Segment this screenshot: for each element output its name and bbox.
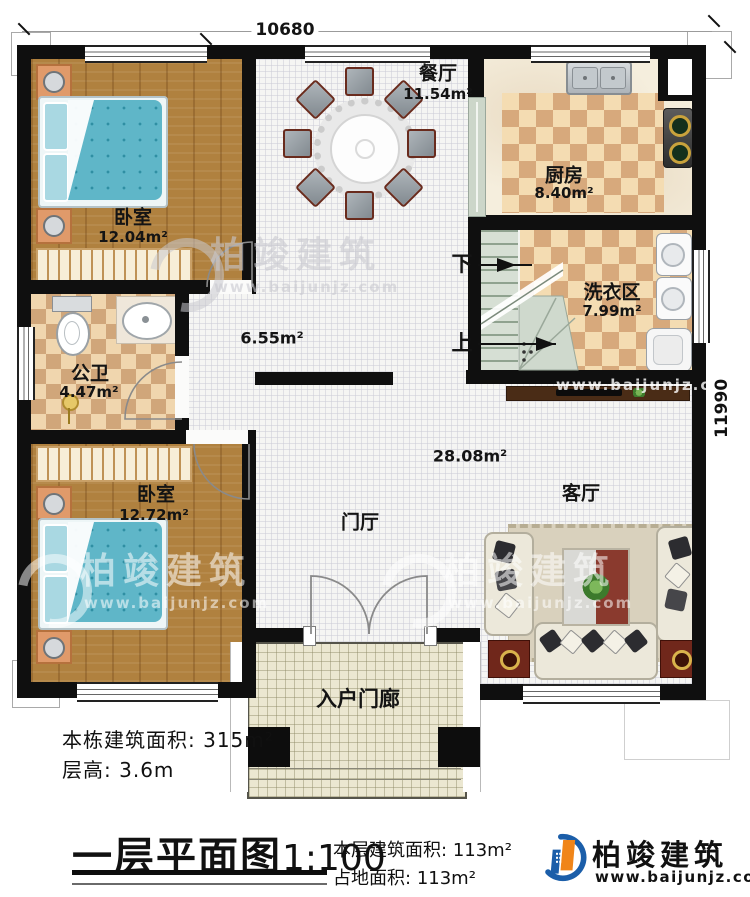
window [305,45,430,63]
stairs-upper-flight [481,230,519,370]
sheet-fold [68,522,94,622]
room-area-kitchen: 8.40m² [534,184,593,202]
wall-bedroom1-right [242,45,256,294]
bathroom-sink [122,302,172,340]
title-underline-thick [72,870,327,875]
floor-height-value: 3.6m [119,758,174,782]
tv [556,389,622,396]
dining-chair [345,67,374,96]
window [85,45,207,63]
wardrobe [36,446,192,482]
dining-chair [283,129,312,158]
wall-laundry-bottom [466,370,706,384]
laundry-cabinet [646,328,692,372]
nightstand [36,64,72,100]
toilet [52,296,92,312]
wardrobe [36,248,192,284]
window [531,45,650,63]
exterior-box-bottom-right [624,700,730,760]
room-label-living: 客厅 [562,479,600,506]
dimension-right: 11990 [712,379,732,438]
room-label-laundry: 洗衣区 [583,278,640,305]
building-total-value: 315m² [203,728,274,752]
lamp-icon [43,637,65,659]
lamp-icon [43,215,65,237]
sink-basin [572,67,598,89]
washing-machine [656,233,692,276]
room-label-bedroom1: 卧室 [114,203,152,230]
dimension-line-top [22,31,712,32]
dimension-tick [200,33,213,46]
plant-icon [579,570,613,604]
bed [38,518,168,630]
pillow [43,575,69,624]
room-area-bathroom: 4.47m² [59,383,118,401]
room-label-bathroom: 公卫 [71,359,109,386]
pillow [43,153,69,202]
sofa-left [484,532,534,636]
brand-block: 柏竣建筑 www.baijunjz.com [540,830,740,892]
wall-kitchen-bottom [468,215,706,230]
coffee-table [562,548,630,626]
title-underline-thin [72,883,327,885]
sink-basin [600,67,626,89]
washing-machine [656,277,692,320]
porch-floor [247,642,467,799]
kitchen-sliding-door [468,97,486,217]
living-area: 28.08m² [433,447,507,466]
nightstand [36,486,72,520]
door-jamb [303,626,316,646]
sheet-fold [68,100,94,200]
hall-area: 6.55m² [240,329,303,348]
room-label-porch: 入户门廊 [316,683,400,713]
floor-drain-cord [68,408,70,424]
bed [38,96,168,208]
building-total-label: 本栋建筑面积: [62,728,196,752]
room-label-foyer: 门厅 [341,508,379,535]
door-opening [210,280,252,294]
door-opening [175,356,189,418]
stairs-lower-flight [519,296,563,370]
brand-logo-icon [540,830,588,890]
wall-hall-foyer [255,372,393,385]
plant-icon [632,388,646,397]
stairs-up-label: 上 [452,327,473,357]
pillow [43,102,69,151]
dimension-top: 10680 [251,20,318,40]
stove [663,108,693,168]
room-area-bedroom2: 12.72m² [119,506,189,524]
porch-step-line [249,779,461,780]
footprint-area: 占地面积: 113m² [333,864,476,890]
footprint-label: 占地面积: [333,868,411,889]
pillow [43,524,69,573]
wall-bedroom2-right [242,438,256,698]
window [17,327,35,400]
floor-area-label: 本层建筑面积: [333,840,447,861]
floor-area-value: 113m² [453,840,512,861]
floor-plan-canvas: 柏竣建筑 www.baijunjz.com 柏竣建筑 www.baijunjz.… [0,0,750,897]
building-total-area: 本栋建筑面积: 315m² [62,724,274,753]
kitchen-sink [566,61,632,95]
room-label-dining: 餐厅 [419,59,457,86]
lamp-icon [43,71,65,93]
burner-icon [669,142,691,164]
dining-chair [407,129,436,158]
lamp-icon [43,493,65,515]
burner-icon [669,115,691,137]
stairs-down-label: 下 [452,248,473,278]
room-area-laundry: 7.99m² [582,302,641,320]
sofa-bottom [534,622,658,680]
floor-area: 本层建筑面积: 113m² [333,836,512,862]
brand-website: www.baijunjz.com [595,868,750,886]
stairs-rail [518,230,520,370]
nightstand [36,630,72,664]
window [523,684,660,704]
footprint-value: 113m² [417,868,476,889]
porch-step-line [249,768,461,769]
door-opening [186,430,248,444]
dimension-tick [708,15,721,28]
floor-height-label: 层高: [62,758,112,782]
window [77,682,218,702]
door-jamb [424,626,437,646]
room-area-dining: 11.54m² [403,85,473,103]
toilet-bowl [56,312,90,356]
dining-chair [345,191,374,220]
end-table [488,640,530,678]
room-area-bedroom1: 12.04m² [98,228,168,246]
nightstand [36,208,72,244]
room-label-bedroom2: 卧室 [137,480,175,507]
floor-height: 层高: 3.6m [62,754,174,783]
porch-side-right [463,642,481,792]
window [692,250,710,343]
porch-column [438,727,480,767]
dining-table-center [355,139,375,159]
